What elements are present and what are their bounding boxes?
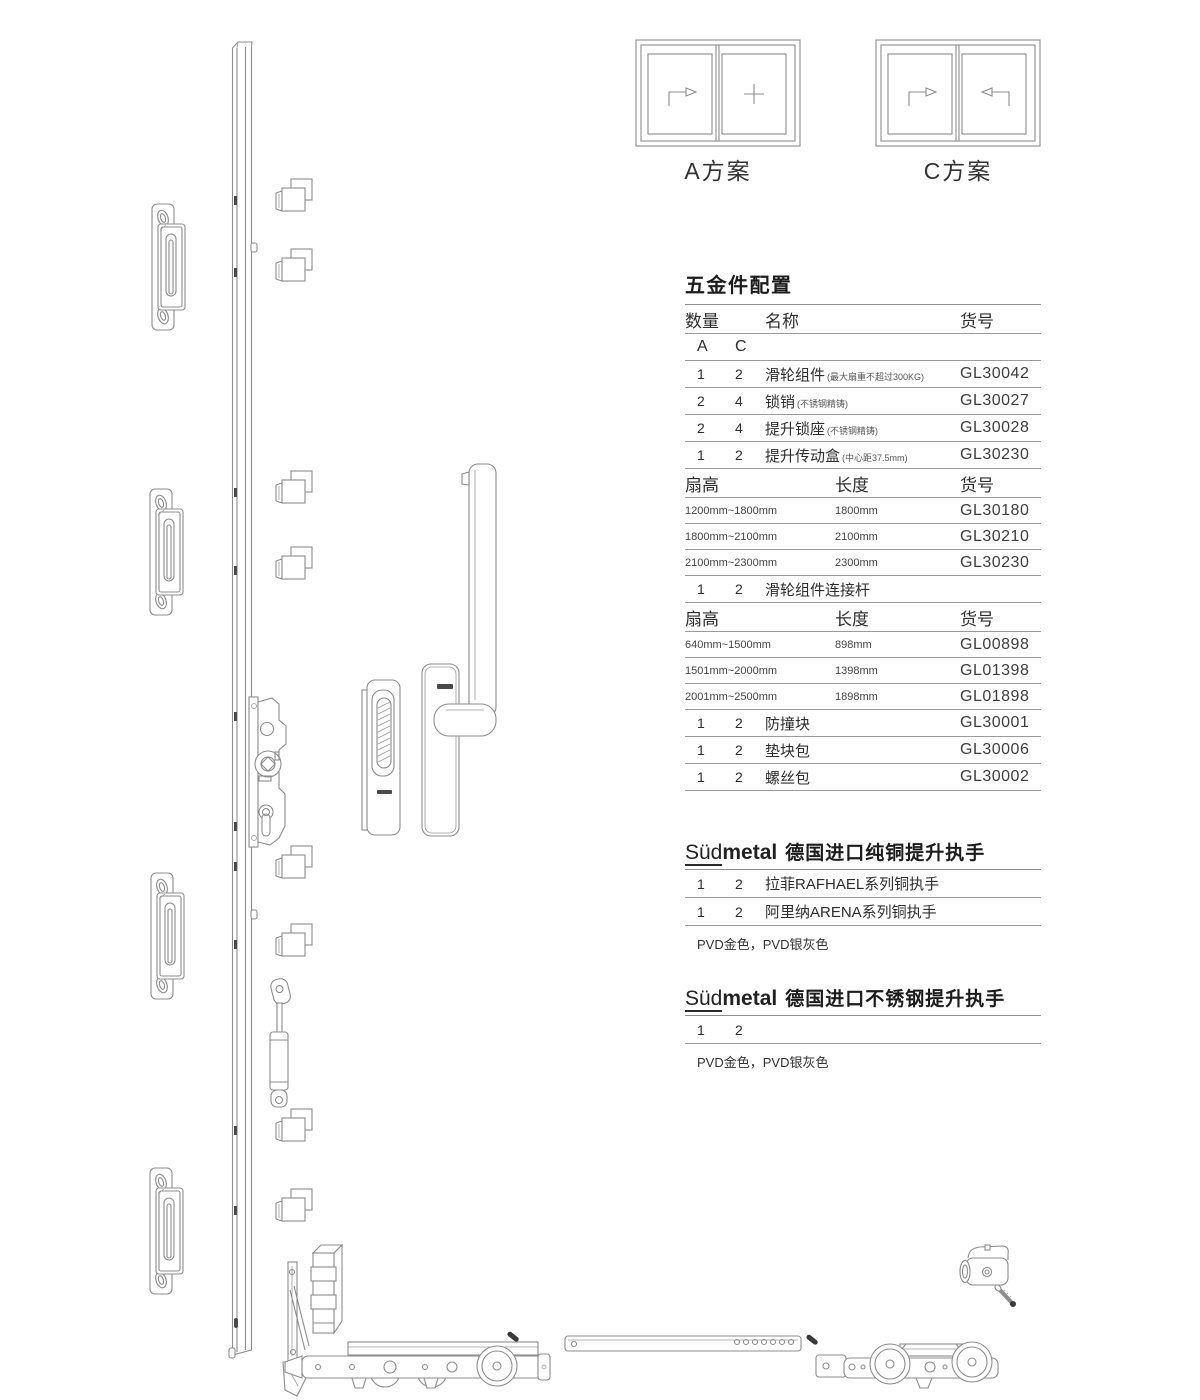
item-code: GL01398: [960, 662, 1041, 680]
qty-c: 2: [725, 769, 765, 785]
size-header-row: 扇高 长度 货号: [685, 469, 1041, 498]
qty-c: 2: [725, 904, 765, 920]
slide-arrow-left-icon: [982, 88, 1009, 106]
table-row: 2 4 锁销(不锈钢精铸) GL30027: [685, 388, 1041, 415]
brand-title: 德国进口不锈钢提升执手: [785, 984, 1005, 1011]
qty-a: 1: [685, 447, 725, 463]
catalog-page: A方案 C方案 五金件配置 数量 名称 货号 A C 1 2 滑轮组件(最大扇重…: [0, 0, 1200, 1400]
brand-heading: Südmetal 德国进口纯铜提升执手: [685, 838, 1041, 870]
keeper-plate-drawing: [150, 1168, 183, 1294]
lock-block-drawing: [276, 846, 312, 878]
table-header-row: 数量 名称 货号: [685, 305, 1041, 334]
keeper-plate-drawing: [152, 204, 185, 330]
qty-c: 4: [725, 393, 765, 409]
qty-a: 1: [685, 904, 725, 920]
table-row: 1 2 防撞块 GL30001: [685, 710, 1041, 737]
size-row: 2100mm~2300mm 2300mm GL30230: [685, 550, 1041, 576]
end-cap-drawing: [960, 1245, 1008, 1285]
fan-range: 2001mm~2500mm: [685, 691, 835, 703]
brand-section-stainless: Südmetal 德国进口不锈钢提升执手 1 2 PVD金色，PVD银灰色: [685, 984, 1041, 1071]
item-code: GL00898: [960, 636, 1041, 654]
item-name: 滑轮组件(最大扇重不超过300KG): [765, 364, 960, 385]
handle-drawing: [422, 464, 496, 836]
table-row: 1 2 阿里纳ARENA系列铜执手: [685, 898, 1041, 926]
size-row: 1501mm~2000mm 1398mm GL01398: [685, 658, 1041, 684]
window-scheme-a-drawing: [636, 40, 800, 146]
roller-carriage-right-drawing: [816, 1342, 998, 1388]
fan-range: 1800mm~2100mm: [685, 531, 835, 543]
lock-block-drawing: [276, 249, 312, 281]
damper-drawing: [269, 977, 292, 1107]
keeper-plate-drawing: [151, 873, 184, 999]
window-scheme-c-drawing: [876, 40, 1040, 146]
length: 2300mm: [835, 557, 960, 569]
qty-c: 2: [725, 715, 765, 731]
item-code: GL30001: [960, 714, 1041, 732]
qty-a: 1: [685, 715, 725, 731]
item-code: GL30006: [960, 741, 1041, 759]
qty-c: 2: [725, 366, 765, 382]
item-code: GL30210: [960, 528, 1041, 546]
finish-note: PVD金色，PVD银灰色: [685, 934, 1041, 953]
fan-range: 2100mm~2300mm: [685, 557, 835, 569]
connecting-rod-drawing: [565, 1334, 819, 1351]
qty-c: 2: [725, 581, 765, 597]
qty-a: 1: [685, 769, 725, 785]
suedmetal-logo: Südmetal: [685, 841, 777, 865]
item-code: GL30230: [960, 554, 1041, 572]
lock-block-drawing: [276, 1109, 312, 1141]
fixed-plus-icon: [744, 84, 764, 104]
keeper-plate-drawing: [150, 489, 183, 615]
qty-a: 1: [685, 742, 725, 758]
length: 1898mm: [835, 691, 960, 703]
fan-range: 640mm~1500mm: [685, 639, 835, 651]
lock-block-drawing: [276, 179, 312, 211]
brand-title: 德国进口纯铜提升执手: [785, 838, 985, 865]
lock-block-drawing: [276, 471, 312, 503]
item-name: 垫块包: [765, 740, 960, 761]
item-name: 防撞块: [765, 713, 960, 734]
size-header-row: 扇高 长度 货号: [685, 603, 1041, 632]
qty-a: 1: [685, 1022, 725, 1038]
item-name: 滑轮组件连接杆: [765, 579, 1041, 600]
table-row: 1 2 拉菲RAFHAEL系列铜执手: [685, 870, 1041, 898]
col-code: 货号: [960, 471, 1041, 496]
qty-a: 2: [685, 420, 725, 436]
qty-c: 2: [725, 876, 765, 892]
length: 2100mm: [835, 531, 960, 543]
flush-pull-drawing: [362, 680, 400, 835]
lock-block-drawing: [276, 547, 312, 579]
brand-heading: Südmetal 德国进口不锈钢提升执手: [685, 984, 1041, 1016]
item-code: GL30002: [960, 768, 1041, 786]
qty-c: 2: [725, 447, 765, 463]
variant-c: C: [725, 338, 765, 356]
table-row: 1 2 滑轮组件(最大扇重不超过300KG) GL30042: [685, 361, 1041, 388]
size-row: 2001mm~2500mm 1898mm GL01898: [685, 684, 1041, 710]
roller-carriage-left-drawing: [285, 1331, 550, 1388]
fan-range: 1501mm~2000mm: [685, 665, 835, 677]
item-code: GL30180: [960, 502, 1041, 520]
length: 1398mm: [835, 665, 960, 677]
qty-a: 1: [685, 581, 725, 597]
size-row: 1200mm~1800mm 1800mm GL30180: [685, 498, 1041, 524]
qty-c: 2: [725, 1022, 765, 1038]
qty-a: 2: [685, 393, 725, 409]
size-row: 1800mm~2100mm 2100mm GL30210: [685, 524, 1041, 550]
item-code: GL01898: [960, 688, 1041, 706]
col-code: 货号: [960, 307, 1041, 332]
slide-arrow-right-icon: [669, 88, 696, 106]
lock-block-drawing: [276, 1189, 312, 1221]
brand-mark: [377, 790, 392, 794]
item-name: 提升锁座(不锈钢精铸): [765, 418, 960, 439]
col-fan-height: 扇高: [685, 605, 835, 630]
table-row: 1 2: [685, 1016, 1041, 1044]
size-row: 640mm~1500mm 898mm GL00898: [685, 632, 1041, 658]
brand-section-copper: Südmetal 德国进口纯铜提升执手 1 2 拉菲RAFHAEL系列铜执手 1…: [685, 838, 1041, 953]
item-code: GL30028: [960, 419, 1041, 437]
suedmetal-logo: Südmetal: [685, 987, 777, 1011]
col-code: 货号: [960, 605, 1041, 630]
item-code: GL30027: [960, 392, 1041, 410]
col-length: 长度: [835, 605, 960, 630]
table-row: 1 2 提升传动盒(中心距37.5mm) GL30230: [685, 442, 1041, 469]
table-row: 2 4 提升锁座(不锈钢精铸) GL30028: [685, 415, 1041, 442]
col-fan-height: 扇高: [685, 471, 835, 496]
fan-range: 1200mm~1800mm: [685, 505, 835, 517]
item-name: 提升传动盒(中心距37.5mm): [765, 445, 960, 466]
screw-drawing: [994, 1284, 1016, 1307]
item-name: 拉菲RAFHAEL系列铜执手: [765, 873, 1041, 894]
table-title: 五金件配置: [685, 269, 1041, 305]
item-code: GL30230: [960, 446, 1041, 464]
item-name: 螺丝包: [765, 767, 960, 788]
finish-note: PVD金色，PVD银灰色: [685, 1052, 1041, 1071]
qty-a: 1: [685, 876, 725, 892]
table-row: 1 2 滑轮组件连接杆: [685, 576, 1041, 603]
variant-row: A C: [685, 334, 1041, 361]
item-code: GL30042: [960, 365, 1041, 383]
brand-mark: [437, 684, 453, 689]
scheme-a-label: A方案: [636, 152, 800, 186]
length: 898mm: [835, 639, 960, 651]
item-name: 锁销(不锈钢精铸): [765, 391, 960, 412]
slide-arrow-right-icon: [909, 88, 936, 106]
hardware-config-table: 五金件配置 数量 名称 货号 A C 1 2 滑轮组件(最大扇重不超过300KG…: [685, 269, 1041, 791]
lock-block-drawing: [276, 924, 312, 956]
gearbox-drawing: [249, 697, 286, 847]
qty-c: 2: [725, 742, 765, 758]
col-qty: 数量: [685, 307, 765, 332]
qty-c: 4: [725, 420, 765, 436]
length: 1800mm: [835, 505, 960, 517]
variant-a: A: [685, 338, 725, 356]
table-row: 1 2 垫块包 GL30006: [685, 737, 1041, 764]
qty-a: 1: [685, 366, 725, 382]
item-name: 阿里纳ARENA系列铜执手: [765, 901, 1041, 922]
scheme-c-label: C方案: [876, 152, 1040, 186]
col-name: 名称: [765, 307, 960, 332]
table-row: 1 2 螺丝包 GL30002: [685, 764, 1041, 791]
col-length: 长度: [835, 471, 960, 496]
corner-guide-drawing: [311, 1245, 342, 1333]
